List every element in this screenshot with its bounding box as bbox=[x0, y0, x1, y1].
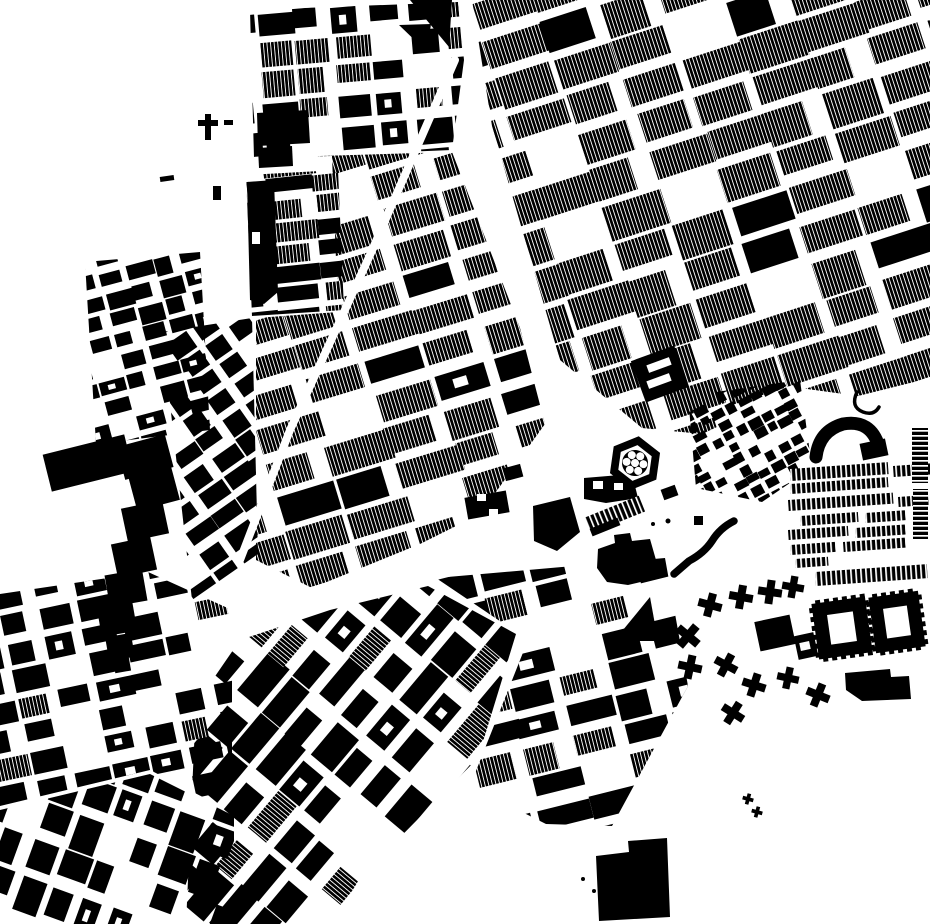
building-block bbox=[657, 750, 705, 802]
building-block bbox=[12, 663, 50, 693]
building-block bbox=[805, 400, 819, 412]
building-block bbox=[131, 387, 157, 411]
building-block bbox=[361, 765, 401, 807]
building-block bbox=[122, 240, 144, 257]
building-block bbox=[51, 379, 80, 407]
building-block bbox=[515, 411, 573, 448]
building-block bbox=[211, 137, 247, 158]
building-block bbox=[0, 509, 27, 543]
building-block bbox=[712, 438, 724, 450]
building-block bbox=[767, 421, 778, 432]
building-block bbox=[46, 532, 78, 563]
building-block bbox=[605, 400, 656, 442]
courtyard-cutout bbox=[477, 494, 486, 501]
cross-tower bbox=[739, 670, 769, 700]
building-block bbox=[200, 226, 236, 252]
building-block bbox=[154, 577, 188, 599]
building-block bbox=[523, 742, 560, 776]
building-block bbox=[216, 299, 239, 322]
building-block bbox=[537, 798, 594, 830]
small-dash bbox=[160, 175, 175, 182]
building-block bbox=[137, 191, 166, 212]
courtyard-cutout bbox=[252, 232, 260, 244]
building-block bbox=[322, 867, 359, 905]
building-block bbox=[451, 120, 504, 162]
building-block bbox=[292, 7, 317, 28]
building-block bbox=[229, 314, 257, 341]
building-block bbox=[94, 248, 118, 266]
courtyard-cutout bbox=[593, 481, 603, 489]
building-block bbox=[175, 688, 205, 715]
building-block bbox=[725, 496, 782, 534]
building-block bbox=[189, 396, 214, 414]
building-block bbox=[252, 0, 291, 2]
building-block bbox=[771, 459, 787, 474]
building-block bbox=[174, 146, 238, 189]
building-block bbox=[513, 904, 549, 924]
building-block bbox=[501, 383, 545, 415]
building-block bbox=[55, 214, 79, 231]
building-block bbox=[218, 15, 255, 36]
comb-strip bbox=[865, 510, 906, 523]
figure-ground-map bbox=[0, 0, 930, 924]
building-block bbox=[192, 287, 216, 305]
building-block bbox=[473, 752, 517, 788]
building-block bbox=[474, 918, 521, 924]
building-block bbox=[129, 838, 157, 868]
building-block bbox=[663, 698, 707, 745]
building-block bbox=[0, 206, 48, 246]
building-block bbox=[131, 669, 161, 691]
building-block bbox=[554, 43, 619, 90]
building-block bbox=[153, 83, 203, 121]
building-block bbox=[192, 772, 219, 798]
building-block bbox=[146, 233, 173, 256]
building-block bbox=[696, 789, 750, 819]
building-block bbox=[785, 741, 821, 769]
building-block bbox=[121, 349, 146, 369]
building-block bbox=[814, 397, 826, 410]
building-block bbox=[24, 719, 54, 742]
small-structure bbox=[666, 519, 671, 524]
courtyard-perimeter-block bbox=[808, 593, 876, 663]
building-block bbox=[918, 375, 930, 420]
building-block bbox=[8, 640, 36, 666]
building-block bbox=[882, 261, 930, 310]
building-block bbox=[195, 596, 229, 620]
snake-building bbox=[674, 521, 734, 574]
building-block bbox=[464, 793, 505, 835]
building-block bbox=[76, 296, 105, 316]
building-block bbox=[307, 581, 374, 620]
building-block bbox=[765, 475, 780, 489]
t-building-bar bbox=[198, 120, 218, 126]
building-block bbox=[476, 190, 542, 238]
building-block bbox=[433, 147, 477, 180]
building-block bbox=[18, 693, 50, 718]
building-block bbox=[65, 364, 93, 385]
comb-strip bbox=[795, 557, 829, 568]
building-block bbox=[205, 277, 231, 304]
comb-strip bbox=[815, 564, 928, 586]
building-block bbox=[0, 336, 16, 366]
building-block bbox=[37, 775, 68, 797]
building-block bbox=[93, 104, 140, 145]
building-block bbox=[854, 0, 911, 31]
building-block bbox=[274, 263, 321, 284]
building-block bbox=[0, 645, 4, 675]
building-block bbox=[64, 221, 110, 253]
building-block bbox=[201, 222, 223, 243]
building-block bbox=[0, 296, 20, 315]
chain-blob bbox=[121, 500, 169, 542]
building-block bbox=[324, 429, 396, 477]
building-block bbox=[22, 420, 45, 441]
building-block bbox=[115, 170, 165, 207]
building-block bbox=[803, 799, 850, 835]
building-block bbox=[571, 395, 621, 435]
building-block bbox=[165, 295, 185, 315]
building-block bbox=[60, 234, 86, 256]
building-block bbox=[336, 62, 371, 83]
building-block bbox=[82, 533, 115, 564]
building-block bbox=[741, 229, 798, 274]
building-block bbox=[316, 191, 351, 212]
building-block bbox=[383, 415, 437, 455]
building-block bbox=[68, 815, 104, 857]
building-block bbox=[693, 81, 752, 126]
building-block bbox=[759, 843, 798, 873]
building-block bbox=[329, 0, 358, 1]
building-block bbox=[487, 517, 513, 543]
bottom-l-block bbox=[596, 838, 670, 921]
building-block bbox=[422, 330, 473, 366]
building-block bbox=[707, 550, 719, 563]
building-block bbox=[325, 394, 355, 422]
building-block bbox=[741, 527, 791, 560]
building-block bbox=[0, 171, 36, 208]
building-block bbox=[0, 754, 32, 783]
building-block bbox=[837, 325, 886, 366]
chain-blob bbox=[105, 633, 135, 661]
building-block bbox=[153, 361, 182, 380]
building-block bbox=[709, 318, 775, 362]
building-block bbox=[755, 521, 769, 535]
building-block bbox=[799, 209, 863, 253]
small-dash bbox=[224, 120, 233, 125]
building-block bbox=[200, 255, 240, 282]
big-solid-block bbox=[257, 110, 310, 146]
building-block bbox=[314, 909, 363, 924]
building-block bbox=[230, 580, 257, 605]
building-block bbox=[149, 340, 177, 360]
building-block bbox=[30, 746, 68, 775]
building-block bbox=[789, 169, 855, 214]
building-block bbox=[131, 282, 153, 301]
building-block bbox=[295, 38, 330, 65]
building-block bbox=[743, 529, 755, 542]
building-block bbox=[46, 369, 109, 415]
building-block bbox=[222, 194, 245, 215]
building-block bbox=[778, 441, 792, 454]
building-block bbox=[50, 304, 75, 323]
building-block bbox=[33, 351, 52, 367]
building-block bbox=[207, 388, 235, 415]
comb-strip bbox=[790, 542, 836, 555]
building-block bbox=[106, 869, 151, 915]
building-block bbox=[0, 782, 28, 808]
building-block bbox=[17, 273, 66, 315]
building-block bbox=[373, 653, 412, 693]
building-block bbox=[563, 876, 601, 916]
building-block bbox=[3, 469, 36, 499]
building-block bbox=[200, 220, 228, 248]
building-block bbox=[798, 418, 810, 430]
building-block bbox=[395, 445, 465, 489]
building-block bbox=[657, 0, 709, 14]
cross-tower bbox=[802, 679, 833, 710]
building-block bbox=[410, 570, 439, 599]
building-block bbox=[370, 567, 402, 597]
building-block bbox=[462, 915, 507, 924]
building-block bbox=[689, 716, 733, 763]
building-block bbox=[44, 503, 64, 522]
building-block bbox=[740, 405, 755, 418]
building-block bbox=[566, 695, 617, 727]
cross-tower bbox=[775, 665, 801, 691]
cross-tower bbox=[716, 696, 749, 729]
building-block bbox=[205, 239, 231, 257]
building-block bbox=[162, 143, 212, 162]
cross-tower bbox=[741, 792, 754, 805]
building-block bbox=[510, 680, 554, 712]
building-block bbox=[479, 559, 526, 591]
building-block bbox=[70, 274, 95, 294]
building-block bbox=[482, 23, 551, 70]
building-block bbox=[771, 488, 783, 500]
building-block bbox=[40, 803, 74, 837]
housing-solid-block bbox=[754, 615, 795, 652]
building-block bbox=[616, 688, 653, 721]
building-block bbox=[591, 596, 629, 625]
cross-tower bbox=[780, 574, 805, 599]
building-block bbox=[691, 463, 703, 475]
building-block bbox=[236, 569, 295, 610]
building-block bbox=[106, 288, 136, 311]
building-block bbox=[0, 554, 27, 580]
building-block bbox=[795, 446, 809, 458]
building-block bbox=[589, 785, 643, 820]
building-block bbox=[193, 636, 220, 663]
building-block bbox=[8, 250, 28, 269]
building-block bbox=[463, 151, 533, 196]
building-block bbox=[217, 0, 241, 5]
building-block bbox=[737, 545, 750, 558]
cross-tower bbox=[756, 578, 783, 605]
building-block bbox=[145, 722, 177, 749]
building-block bbox=[666, 674, 704, 708]
building-block bbox=[57, 495, 88, 526]
building-block bbox=[672, 702, 721, 738]
building-block bbox=[336, 34, 372, 58]
building-block bbox=[190, 180, 216, 200]
building-block bbox=[539, 7, 595, 53]
building-block bbox=[13, 378, 44, 407]
building-block bbox=[49, 327, 77, 355]
building-block bbox=[913, 0, 930, 8]
courtyard-cutout bbox=[614, 483, 623, 490]
building-block bbox=[722, 551, 736, 564]
building-block bbox=[532, 138, 559, 163]
cross-tower bbox=[710, 649, 742, 681]
building-block bbox=[455, 523, 526, 577]
building-block bbox=[867, 22, 926, 64]
building-block bbox=[472, 0, 538, 30]
building-block bbox=[43, 152, 101, 191]
building-block bbox=[582, 325, 632, 370]
building-block bbox=[412, 554, 452, 596]
building-block bbox=[447, 25, 479, 49]
building-block bbox=[729, 442, 740, 453]
building-block bbox=[364, 345, 424, 383]
building-block bbox=[0, 730, 11, 756]
building-block bbox=[177, 0, 210, 8]
cross-tower bbox=[727, 583, 755, 611]
building-block bbox=[775, 524, 789, 538]
building-block bbox=[768, 514, 780, 526]
building-block bbox=[29, 330, 52, 351]
building-block bbox=[39, 263, 60, 280]
building-block bbox=[0, 256, 8, 278]
building-block bbox=[399, 867, 444, 899]
building-block bbox=[224, 299, 248, 316]
building-block bbox=[270, 219, 319, 243]
building-block bbox=[442, 174, 509, 217]
building-block bbox=[195, 217, 249, 254]
comb-strip bbox=[800, 512, 859, 526]
building-block bbox=[703, 481, 715, 494]
building-block bbox=[186, 184, 234, 217]
building-block bbox=[38, 416, 71, 448]
building-block bbox=[412, 294, 474, 334]
building-block bbox=[695, 283, 756, 328]
building-block bbox=[33, 119, 89, 161]
small-bar bbox=[213, 186, 221, 200]
building-block bbox=[723, 430, 735, 442]
building-block bbox=[711, 557, 725, 570]
building-block bbox=[70, 493, 95, 516]
building-block bbox=[369, 895, 420, 924]
building-block bbox=[462, 248, 509, 281]
building-block bbox=[403, 859, 449, 907]
building-block bbox=[39, 361, 70, 391]
building-block bbox=[739, 519, 752, 533]
building-block bbox=[242, 597, 276, 628]
comb-strip bbox=[788, 493, 894, 511]
chain-blob bbox=[113, 657, 131, 674]
building-block bbox=[214, 679, 243, 705]
building-block bbox=[210, 649, 244, 684]
building-block bbox=[669, 445, 680, 456]
building-block bbox=[181, 47, 210, 73]
building-block bbox=[115, 219, 145, 239]
building-block bbox=[185, 79, 209, 99]
building-block bbox=[637, 99, 693, 143]
building-block bbox=[111, 199, 142, 222]
building-block bbox=[0, 496, 2, 522]
building-block bbox=[297, 67, 324, 94]
building-block bbox=[392, 728, 434, 772]
small-structure bbox=[651, 522, 655, 526]
building-block bbox=[188, 575, 220, 604]
building-block bbox=[217, 615, 246, 642]
building-block bbox=[809, 413, 821, 424]
building-block bbox=[489, 809, 536, 858]
small-structure bbox=[592, 889, 596, 893]
building-block bbox=[745, 501, 758, 514]
building-block bbox=[435, 818, 482, 869]
cross-tower bbox=[676, 653, 704, 681]
building-block bbox=[64, 732, 98, 766]
small-structure bbox=[581, 877, 585, 881]
building-block bbox=[445, 857, 481, 889]
building-block bbox=[849, 356, 914, 401]
building-block bbox=[5, 533, 31, 559]
building-block bbox=[244, 608, 282, 647]
cross-tower bbox=[750, 805, 763, 818]
building-block bbox=[342, 125, 376, 150]
building-block bbox=[780, 709, 819, 743]
building-block bbox=[0, 137, 30, 174]
building-block bbox=[49, 413, 69, 433]
building-block bbox=[378, 837, 429, 891]
building-block bbox=[497, 845, 532, 871]
building-block bbox=[456, 839, 504, 890]
building-block bbox=[164, 185, 205, 206]
building-block bbox=[60, 290, 86, 317]
building-block bbox=[536, 578, 572, 607]
building-block bbox=[710, 851, 767, 890]
building-block bbox=[64, 537, 104, 563]
building-block bbox=[65, 256, 85, 275]
small-block bbox=[661, 485, 679, 500]
building-block bbox=[110, 307, 138, 326]
building-block bbox=[396, 548, 426, 576]
building-block bbox=[266, 584, 289, 607]
building-block bbox=[23, 343, 54, 374]
building-block bbox=[738, 492, 750, 504]
building-block bbox=[531, 172, 599, 220]
building-block bbox=[205, 334, 232, 361]
building-block bbox=[311, 171, 354, 191]
building-block bbox=[56, 323, 82, 341]
building-block bbox=[527, 549, 566, 582]
building-block bbox=[0, 277, 9, 297]
building-block bbox=[0, 584, 23, 610]
building-block bbox=[61, 343, 88, 364]
t-building-stem bbox=[205, 114, 211, 140]
building-block bbox=[72, 384, 100, 404]
building-block bbox=[187, 200, 213, 226]
building-block bbox=[385, 784, 433, 833]
building-block bbox=[17, 400, 41, 419]
building-block bbox=[486, 531, 535, 566]
building-block bbox=[170, 205, 193, 223]
chain-blob bbox=[43, 434, 134, 491]
building-block bbox=[39, 603, 73, 630]
building-block bbox=[0, 611, 26, 635]
building-block bbox=[171, 501, 199, 528]
